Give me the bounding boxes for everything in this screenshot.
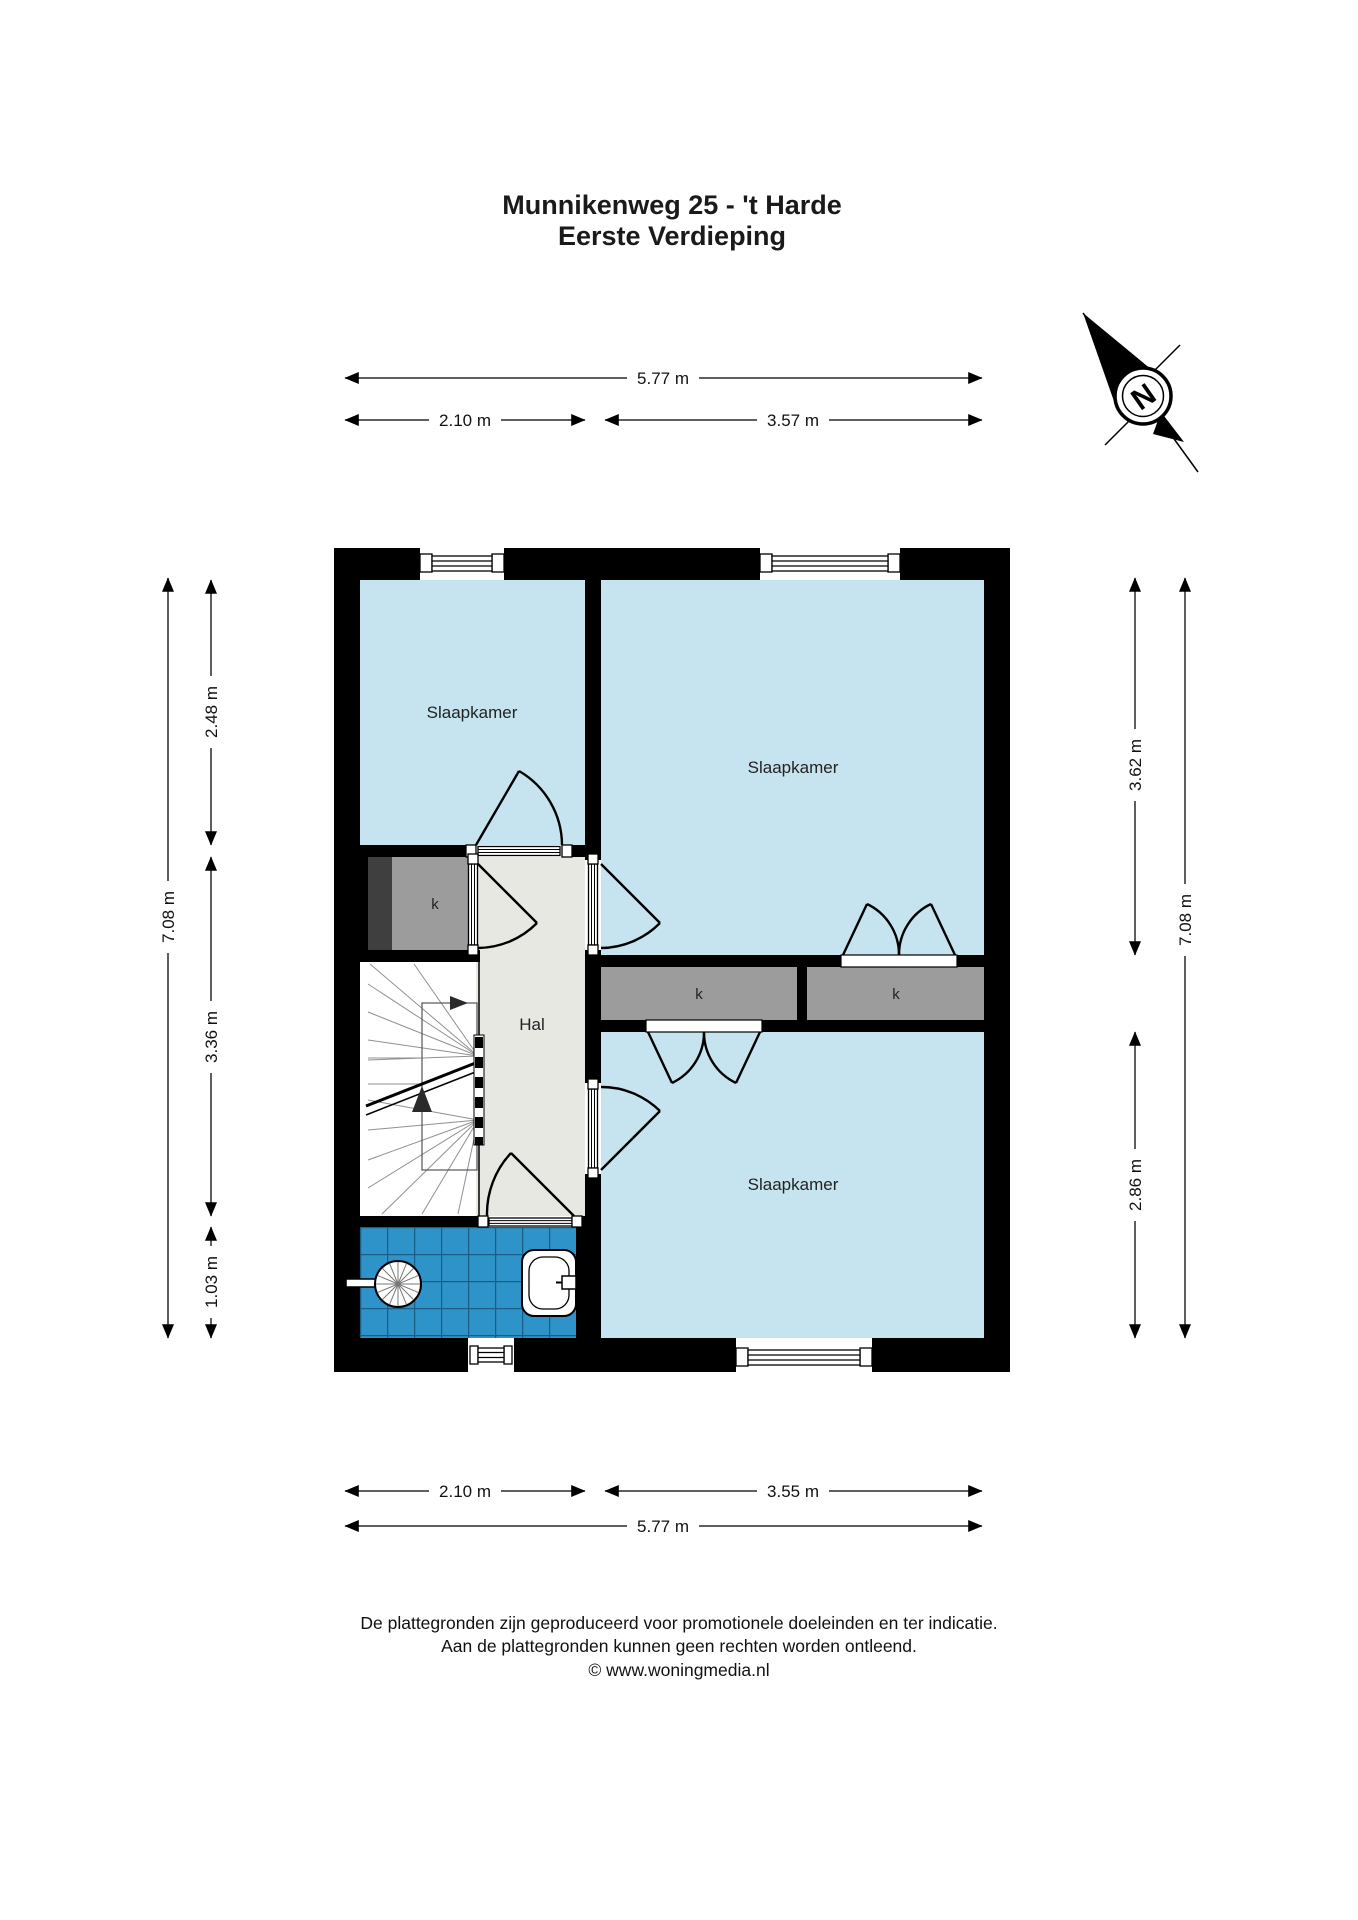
svg-text:3.62 m: 3.62 m [1126, 739, 1145, 791]
window-bathroom [468, 1338, 514, 1372]
opening-closet-right-doors [841, 955, 957, 967]
label-bedroom-top-right: Slaapkamer [748, 758, 839, 777]
label-bedroom-top-left: Slaapkamer [427, 703, 518, 722]
staircase [366, 962, 484, 1216]
svg-text:2.48 m: 2.48 m [202, 686, 221, 738]
label-bedroom-bottom-right: Slaapkamer [748, 1175, 839, 1194]
wall-closetband-separator [797, 955, 807, 1032]
dim-left-top: 2.48 m [201, 676, 221, 748]
dim-right-top: 3.62 m [1125, 729, 1145, 801]
dim-left-bottom: 1.03 m [201, 1246, 221, 1318]
wall-left [334, 548, 360, 1372]
hall-floor [476, 855, 585, 1216]
svg-text:3.57 m: 3.57 m [767, 411, 819, 430]
label-closet-middle: k [695, 986, 703, 1003]
dim-bottom-total: 5.77 m [627, 1516, 699, 1536]
svg-text:3.55 m: 3.55 m [767, 1482, 819, 1501]
dim-left-total: 7.08 m [158, 881, 178, 953]
label-closet-left: k [431, 896, 439, 913]
dim-right-bottom: 2.86 m [1125, 1149, 1145, 1221]
window-top-left [420, 548, 504, 580]
svg-text:2.10 m: 2.10 m [439, 411, 491, 430]
floorplan-page: Munnikenweg 25 - 't Harde Eerste Verdiep… [0, 0, 1358, 1920]
compass-tick-sw [1105, 420, 1130, 445]
wall-hall-bottom [360, 1216, 487, 1227]
svg-text:1.03 m: 1.03 m [202, 1256, 221, 1308]
dim-left-middle: 3.36 m [201, 1001, 221, 1073]
stairs-arrow-right [450, 996, 468, 1010]
label-closet-right: k [892, 986, 900, 1003]
washbasin [522, 1250, 576, 1316]
closet-dark-strip [366, 857, 392, 950]
window-top-right [760, 548, 900, 580]
svg-text:3.36 m: 3.36 m [202, 1011, 221, 1063]
wall-bottom [334, 1338, 1010, 1372]
wall-right [984, 548, 1010, 1372]
label-hall: Hal [519, 1015, 545, 1034]
svg-text:7.08 m: 7.08 m [159, 891, 178, 943]
wall-bathroom-right [576, 1216, 586, 1338]
svg-text:7.08 m: 7.08 m [1176, 894, 1195, 946]
svg-text:2.86 m: 2.86 m [1126, 1159, 1145, 1211]
stairs-walkline [422, 1003, 477, 1170]
window-bottom-right [736, 1338, 872, 1372]
compass-tick-ne [1155, 345, 1180, 370]
stairs-balustrade [474, 1035, 484, 1145]
stairs-upper-fan [368, 964, 478, 1060]
svg-text:5.77 m: 5.77 m [637, 1517, 689, 1536]
wall-center-vertical [585, 580, 601, 1338]
opening-closet-middle-doors [646, 1020, 762, 1032]
svg-text:5.77 m: 5.77 m [637, 369, 689, 388]
disclaimer: De plattegronden zijn geproduceerd voor … [0, 1612, 1358, 1682]
stairs-lower-fan [368, 1100, 478, 1214]
disclaimer-line-3: © www.woningmedia.nl [0, 1659, 1358, 1682]
wall-stairs-top [360, 950, 480, 962]
disclaimer-line-1: De plattegronden zijn geproduceerd voor … [0, 1612, 1358, 1635]
dim-top-right: 3.57 m [757, 410, 829, 430]
svg-text:2.10 m: 2.10 m [439, 1482, 491, 1501]
wall-closet-left-sliver [360, 857, 368, 950]
dim-right-total: 7.08 m [1175, 884, 1195, 956]
dim-top-left: 2.10 m [429, 410, 501, 430]
dim-top-total: 5.77 m [627, 368, 699, 388]
compass: N [1083, 313, 1198, 472]
dim-bottom-left: 2.10 m [429, 1481, 501, 1501]
dim-bottom-right: 3.55 m [757, 1481, 829, 1501]
shower-drain [375, 1261, 421, 1307]
disclaimer-line-2: Aan de plattegronden kunnen geen rechten… [0, 1635, 1358, 1658]
